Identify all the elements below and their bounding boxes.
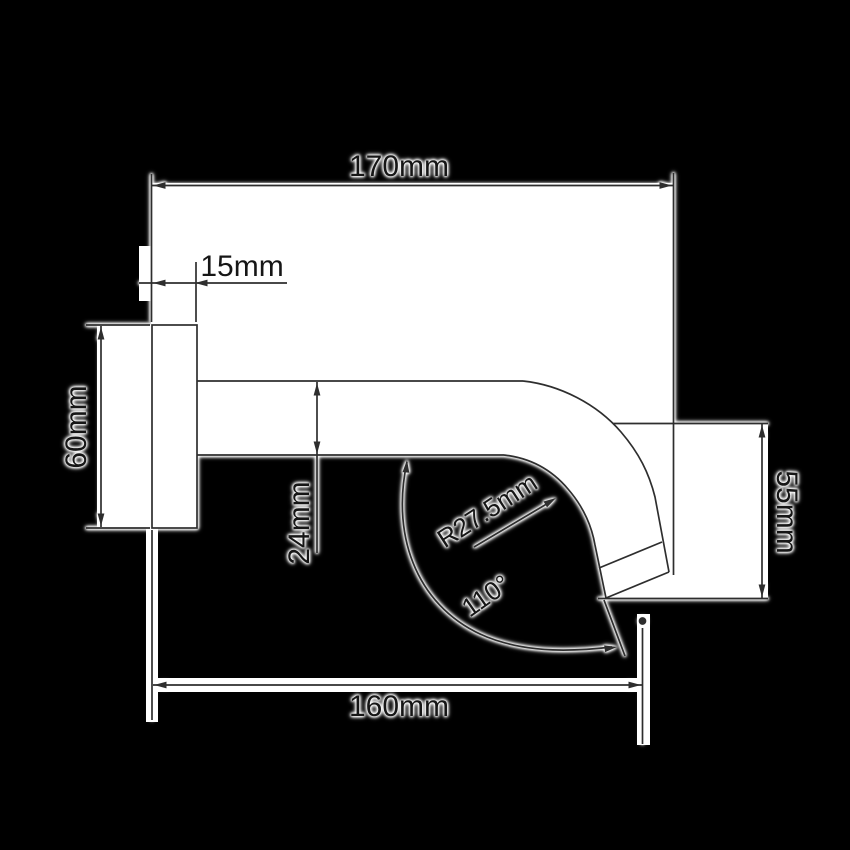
dim-60mm-label: 60mm (60, 385, 93, 468)
dim-170mm-label: 170mm (349, 150, 449, 183)
dim-55mm-label: 55mm (770, 470, 803, 553)
dim-24mm-label: 24mm (283, 481, 316, 564)
faucet-technical-drawing: 170mm 15mm 60mm 24mm R27.5mm 110° 55mm 1… (0, 0, 850, 850)
ext-origin-dot (640, 618, 646, 624)
dim-160mm-label: 160mm (349, 690, 449, 723)
drawing-canvas: 170mm 15mm 60mm 24mm R27.5mm 110° 55mm 1… (0, 0, 850, 850)
dim-15mm-label: 15mm (200, 250, 283, 283)
paper-right-ext-strip (637, 614, 650, 745)
